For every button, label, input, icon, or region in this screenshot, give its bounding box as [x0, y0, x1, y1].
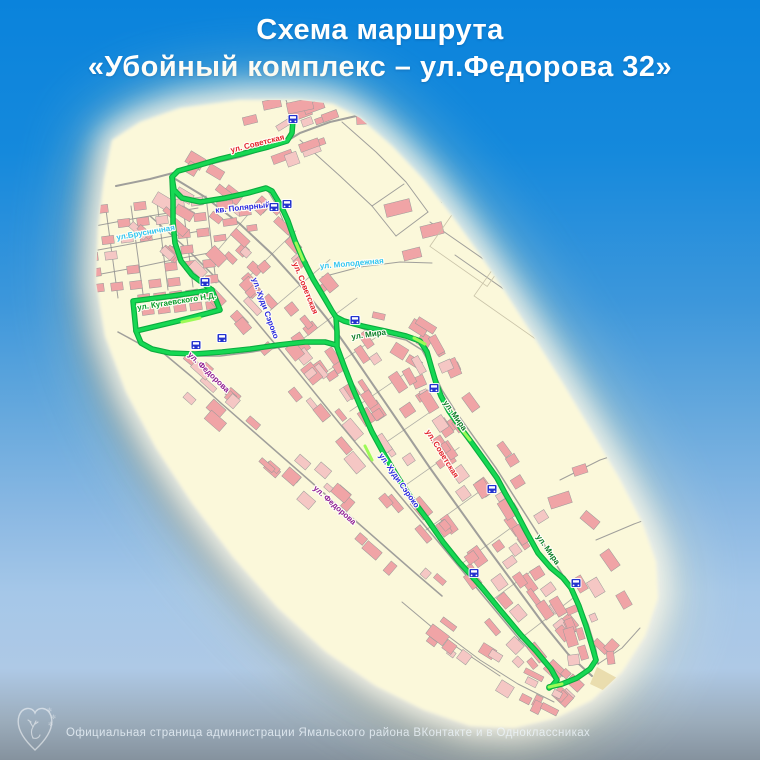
bus-stop-icon — [350, 315, 361, 325]
bus-stop-icon — [571, 578, 582, 588]
yamal-heart-deer-logo-icon: ✻✻✻ — [14, 702, 58, 754]
svg-text:✻: ✻ — [51, 714, 56, 721]
bus-stop-icon — [487, 484, 498, 494]
building — [606, 651, 615, 665]
footer-caption: Официальная страница администрации Ямаль… — [66, 727, 590, 739]
building — [102, 235, 115, 244]
bus-stop-icon — [429, 383, 440, 393]
building — [58, 207, 71, 216]
bus-stop-icon — [469, 568, 480, 578]
building — [194, 212, 207, 221]
bus-stop-icon — [217, 333, 228, 343]
footer: ✻✻✻ Официальная страница администрации Я… — [14, 700, 590, 756]
bus-stop-icon — [288, 114, 299, 124]
bus-stop-icon — [191, 340, 202, 350]
building — [111, 282, 124, 291]
block-outline — [448, 143, 493, 177]
building — [181, 245, 194, 254]
building — [149, 279, 162, 288]
route-map: ул. Советскаяул. Советскаяул. Советскаяк… — [0, 0, 760, 760]
building — [130, 280, 143, 289]
svg-text:✻: ✻ — [47, 707, 52, 714]
building — [385, 97, 393, 104]
building — [165, 262, 178, 271]
bus-stop-icon — [200, 277, 211, 287]
building — [168, 277, 181, 286]
building — [105, 251, 118, 260]
building — [567, 654, 580, 666]
svg-text:✻: ✻ — [48, 721, 53, 728]
building — [137, 217, 150, 226]
building — [247, 224, 258, 231]
bus-stop-icon — [282, 199, 293, 209]
building — [197, 228, 210, 237]
building — [600, 366, 630, 394]
building — [134, 201, 147, 210]
route-scheme-poster: { "page": {"background_top": "#0a83dc", … — [0, 0, 760, 760]
building — [127, 265, 140, 274]
bus-stop-icon — [269, 202, 280, 212]
